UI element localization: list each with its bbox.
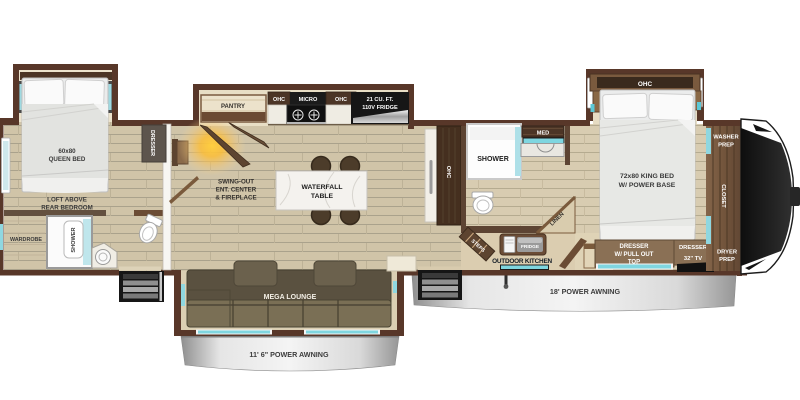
svg-text:DRESSER: DRESSER	[679, 245, 708, 251]
svg-text:60x80: 60x80	[58, 148, 76, 155]
svg-text:MED: MED	[537, 131, 549, 137]
svg-text:CLOSET: CLOSET	[720, 184, 726, 208]
svg-text:OHC: OHC	[445, 166, 451, 178]
svg-text:SWING-OUT: SWING-OUT	[218, 179, 254, 186]
svg-text:32" TV: 32" TV	[684, 256, 702, 262]
svg-text:OHC: OHC	[638, 81, 653, 88]
svg-text:MICRO: MICRO	[299, 97, 318, 103]
svg-text:OHC: OHC	[335, 97, 347, 103]
svg-text:110V FRIDGE: 110V FRIDGE	[362, 105, 398, 111]
svg-text:SHOWER: SHOWER	[477, 156, 509, 163]
svg-text:PANTRY: PANTRY	[221, 104, 245, 110]
svg-text:& FIREPLACE: & FIREPLACE	[215, 195, 256, 202]
svg-text:PREP: PREP	[719, 257, 735, 263]
svg-text:DRYER: DRYER	[717, 250, 738, 256]
svg-text:72x80 KING BED: 72x80 KING BED	[620, 173, 674, 180]
svg-text:W/ POWER BASE: W/ POWER BASE	[619, 182, 676, 189]
svg-text:SHOWER: SHOWER	[71, 227, 77, 252]
svg-text:WARDROBE: WARDROBE	[10, 237, 42, 243]
svg-text:LOFT ABOVE: LOFT ABOVE	[47, 197, 87, 204]
svg-text:DRESSER: DRESSER	[619, 244, 649, 250]
svg-text:FRIDGE: FRIDGE	[521, 244, 540, 250]
svg-text:OHC: OHC	[273, 97, 285, 103]
svg-text:W/ PULL OUT: W/ PULL OUT	[615, 252, 654, 258]
svg-text:21 CU. FT.: 21 CU. FT.	[367, 97, 394, 103]
svg-text:11' 6" POWER AWNING: 11' 6" POWER AWNING	[249, 350, 329, 359]
svg-text:OUTDOOR KITCHEN: OUTDOOR KITCHEN	[492, 258, 552, 265]
svg-text:WATERFALL: WATERFALL	[301, 184, 342, 191]
svg-text:WASHER: WASHER	[713, 135, 739, 141]
svg-text:QUEEN BED: QUEEN BED	[49, 156, 86, 163]
svg-text:18' POWER AWNING: 18' POWER AWNING	[550, 287, 621, 296]
svg-text:ENT. CENTER: ENT. CENTER	[216, 187, 257, 194]
svg-text:PREP: PREP	[718, 143, 734, 149]
svg-text:TABLE: TABLE	[311, 193, 334, 200]
svg-text:DRESSER: DRESSER	[149, 130, 155, 156]
svg-text:MEGA LOUNGE: MEGA LOUNGE	[264, 294, 317, 301]
